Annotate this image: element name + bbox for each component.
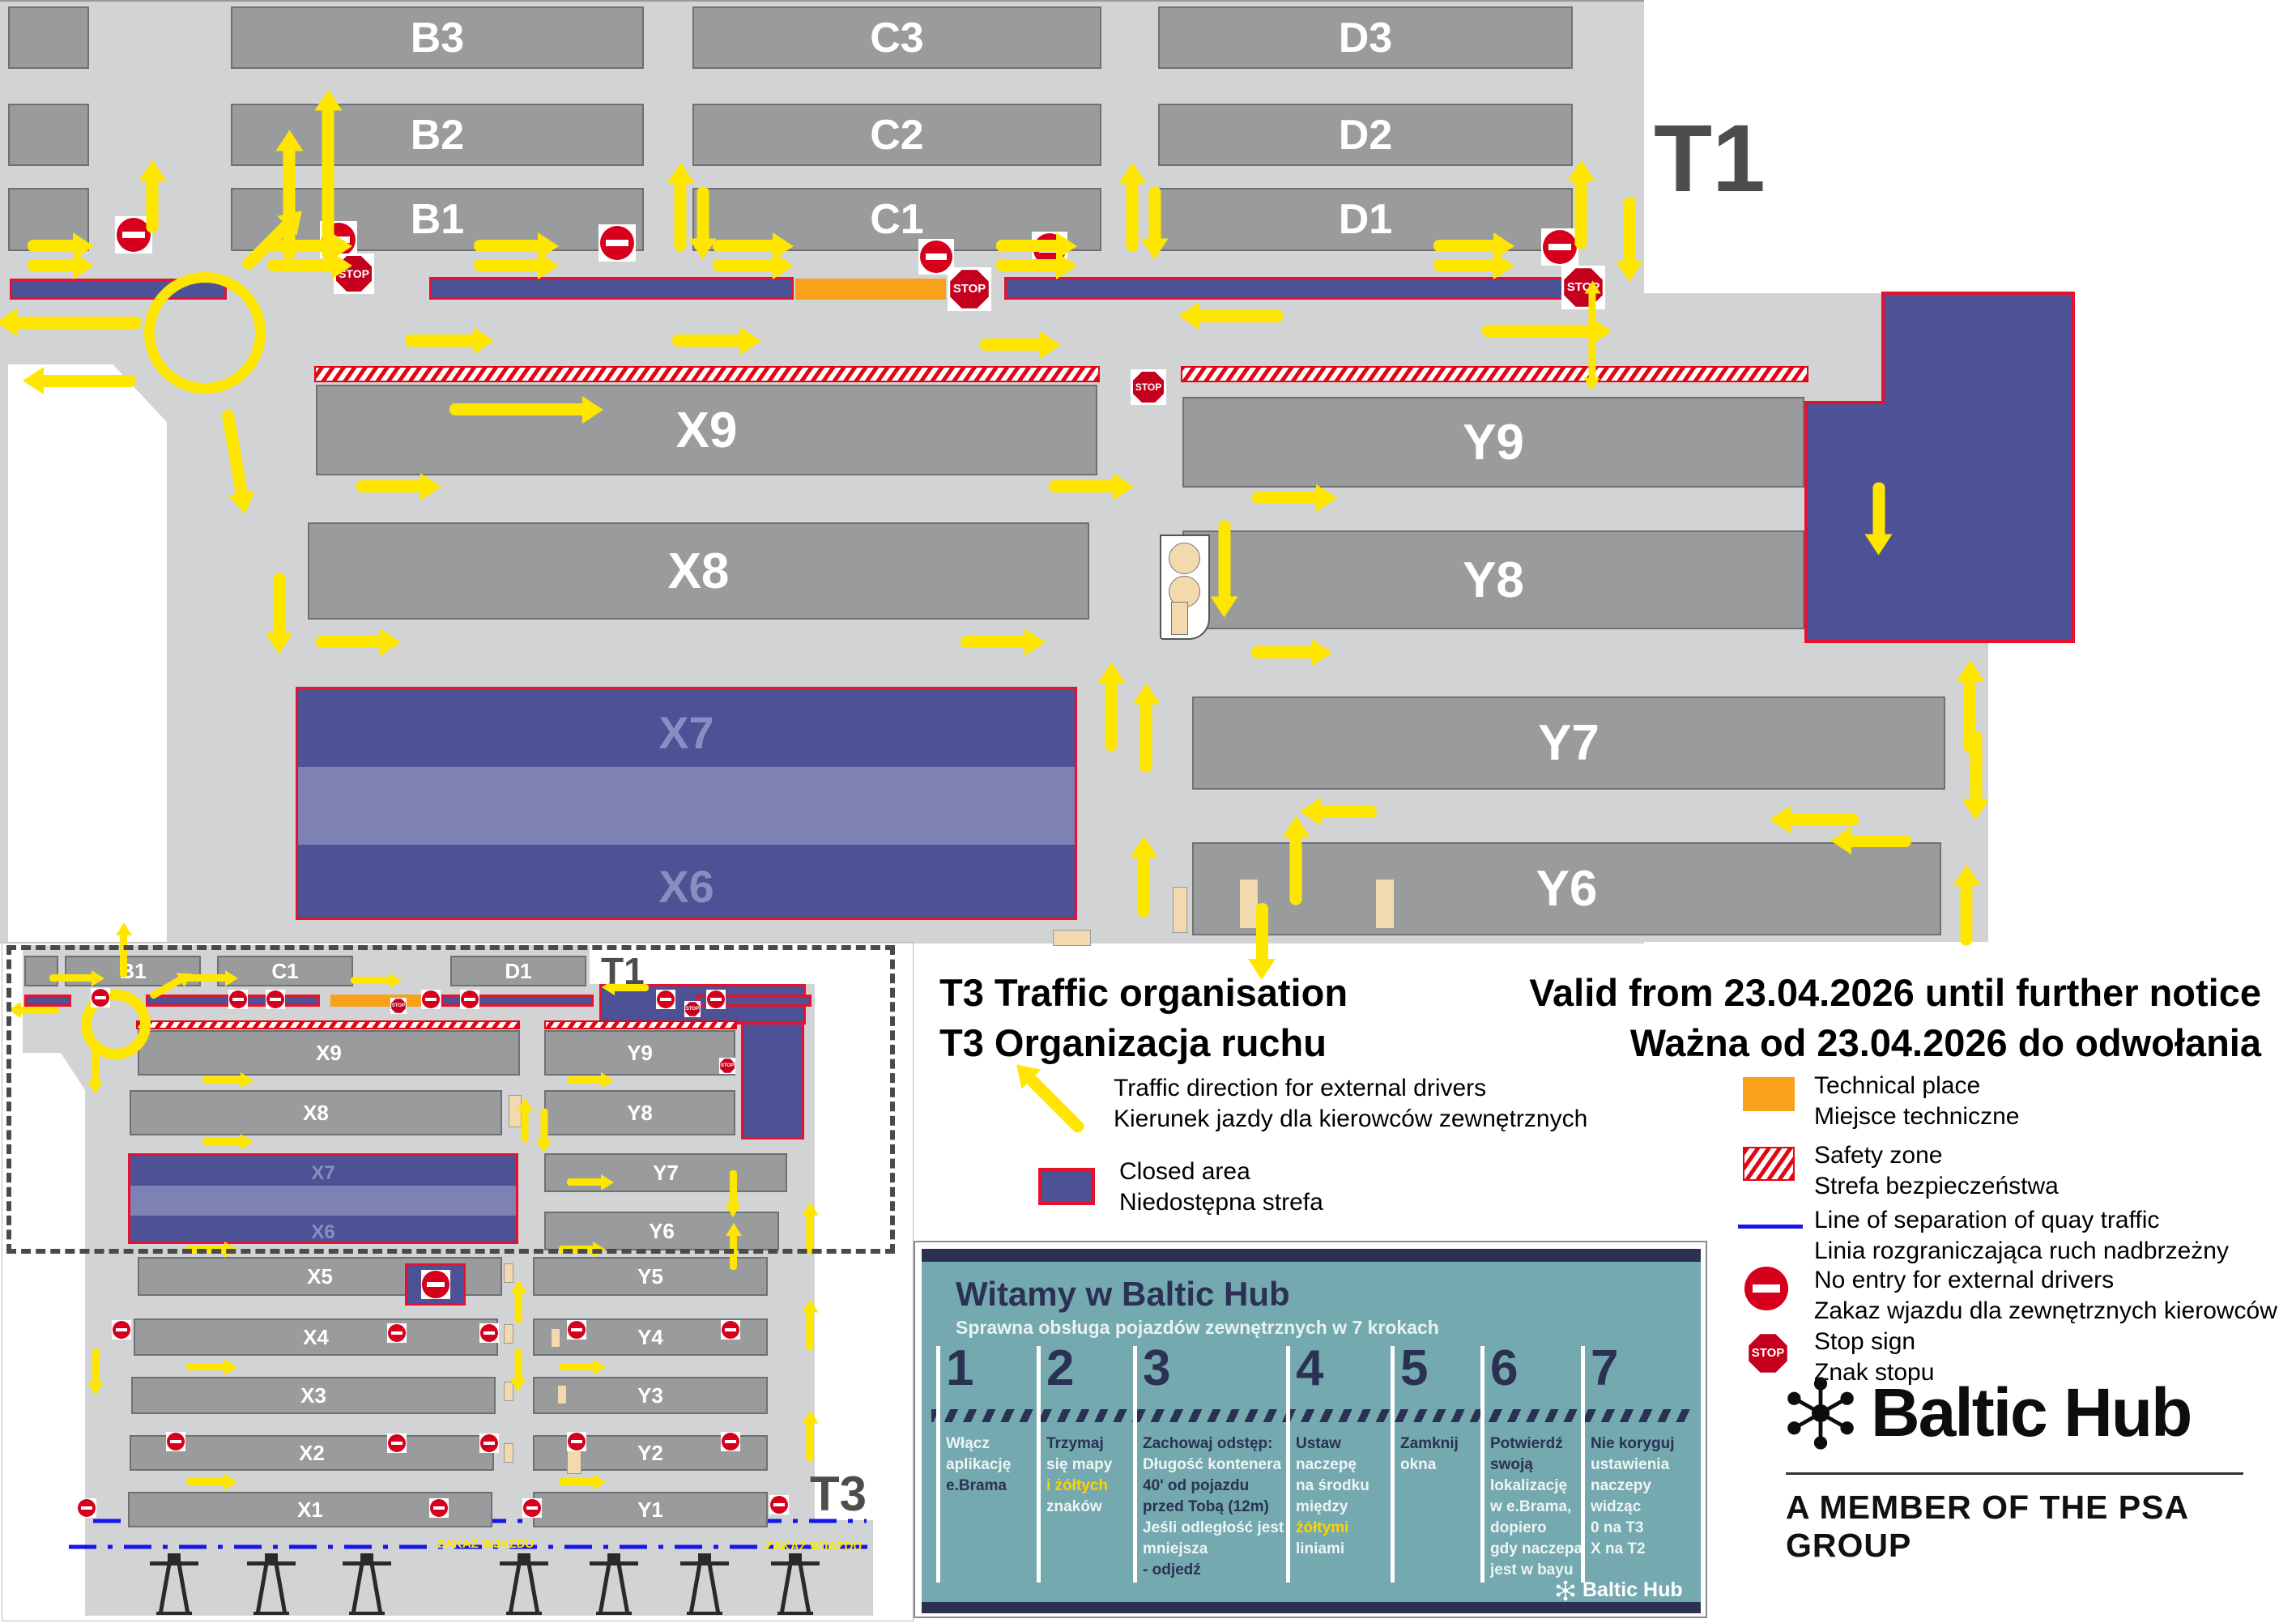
yard-block-D3: D3 bbox=[1158, 6, 1573, 69]
step-text-line: okna bbox=[1400, 1455, 1459, 1476]
quay-line-icon bbox=[1738, 1225, 1803, 1229]
step-column-line bbox=[936, 1346, 941, 1583]
step-text-line: ustawienia bbox=[1591, 1455, 1674, 1476]
safety-zone bbox=[314, 366, 1100, 382]
gate-pillar bbox=[1053, 930, 1091, 946]
step-text-line: się mapy bbox=[1046, 1455, 1112, 1476]
traffic-direction-arrow bbox=[474, 259, 543, 271]
crane-leg bbox=[598, 1565, 611, 1613]
traffic-direction-arrow bbox=[356, 480, 425, 492]
safety-zone-icon bbox=[1743, 1147, 1795, 1181]
yard-block-C3: C3 bbox=[692, 6, 1101, 69]
crane-leg bbox=[780, 1565, 792, 1613]
main-closed-area-x7-x6: X7X6 bbox=[296, 687, 1077, 920]
closed-area-icon bbox=[1038, 1168, 1095, 1205]
traffic-direction-arrow bbox=[980, 339, 1045, 351]
gate-pillar bbox=[1171, 602, 1188, 635]
legend-no-entry-en: No entry for external drivers bbox=[1814, 1265, 2277, 1296]
traffic-direction-arrow bbox=[1786, 814, 1859, 826]
step-text-line: Zachowaj odstęp: bbox=[1143, 1433, 1284, 1455]
step-text-line: naczepę bbox=[1296, 1455, 1370, 1476]
no-entry-sign bbox=[1541, 228, 1578, 266]
step-text-line: lokalizację bbox=[1490, 1476, 1582, 1497]
stop-sign: STOP bbox=[948, 267, 991, 311]
stop-sign-glyph: STOP bbox=[950, 270, 989, 309]
no-entry-sign bbox=[421, 1270, 450, 1299]
traffic-direction-arrow bbox=[1140, 700, 1152, 773]
no-entry-sign bbox=[567, 1432, 586, 1451]
crane-leg bbox=[708, 1565, 720, 1613]
sts-crane-icon bbox=[680, 1553, 729, 1617]
yard-block-X4: X4 bbox=[134, 1318, 498, 1356]
yard-block-Y3: Y3 bbox=[533, 1377, 768, 1414]
traffic-direction-arrow bbox=[713, 240, 777, 252]
step-text: Potwierdźswojąlokalizacjęw e.Brama,dopie… bbox=[1490, 1433, 1582, 1581]
stop-sign: STOP bbox=[1131, 369, 1166, 405]
traffic-direction-arrow bbox=[147, 177, 159, 233]
infographic-brand-icon bbox=[1555, 1580, 1576, 1601]
crane-leg bbox=[351, 1565, 364, 1613]
legend-item-closed-area: Closed area Niedostępna strefa bbox=[1119, 1157, 1323, 1218]
gate-kiosk bbox=[1160, 535, 1210, 640]
no-entry-sign bbox=[721, 1432, 740, 1451]
step-text-line: 0 na T3 bbox=[1591, 1518, 1674, 1539]
step-text-line: Nie koryguj bbox=[1591, 1433, 1674, 1455]
no-entry-sign bbox=[522, 1498, 542, 1518]
quay-no-entry-text-right: ZAKAZ WJAZDU bbox=[765, 1540, 862, 1553]
no-entry-sign bbox=[387, 1433, 407, 1453]
stop-sign-glyph: STOP bbox=[1749, 1334, 1787, 1373]
infographic-brand-text: Baltic Hub bbox=[1582, 1578, 1683, 1602]
step-number: 4 bbox=[1296, 1340, 1323, 1397]
traffic-direction-arrow bbox=[474, 240, 543, 252]
step-number: 6 bbox=[1490, 1340, 1518, 1397]
traffic-direction-arrow bbox=[996, 240, 1061, 252]
step-text-line: liniami bbox=[1296, 1539, 1370, 1560]
legend-item-no-entry: No entry for external drivers Zakaz wjaz… bbox=[1814, 1265, 2277, 1327]
traffic-direction-arrow bbox=[697, 187, 709, 244]
traffic-direction-arrow bbox=[28, 240, 78, 252]
step-text-line: Ustaw bbox=[1296, 1433, 1370, 1455]
legend-item-technical-place: Technical place Miejsce techniczne bbox=[1814, 1071, 2019, 1132]
yard-block-X3: X3 bbox=[131, 1377, 496, 1414]
legend-safety-pl: Strefa bezpieczeństwa bbox=[1814, 1171, 2059, 1202]
crane-leg bbox=[617, 1565, 629, 1613]
no-entry-sign bbox=[429, 1498, 449, 1518]
step-number: 1 bbox=[946, 1340, 973, 1397]
infographic-brand: Baltic Hub bbox=[1555, 1578, 1683, 1602]
legend-technical-pl: Miejsce techniczne bbox=[1814, 1101, 2019, 1132]
step-text-line: Długość kontenera bbox=[1143, 1455, 1284, 1476]
traffic-direction-arrow bbox=[1961, 881, 1973, 946]
step-column-line bbox=[1037, 1346, 1042, 1583]
closed-block-label-bottom: X6 bbox=[298, 860, 1075, 913]
closed-strip bbox=[1004, 277, 1571, 300]
crane-leg bbox=[370, 1565, 382, 1613]
psa-group-text: A MEMBER OF THE PSA GROUP bbox=[1786, 1489, 2296, 1565]
no-entry-sign bbox=[479, 1433, 499, 1453]
step-text-line: Włącz bbox=[946, 1433, 1011, 1455]
inset-extent-box bbox=[6, 945, 895, 1254]
traffic-direction-arrow bbox=[186, 1363, 227, 1370]
traffic-direction-arrow bbox=[1252, 492, 1321, 504]
step-text-line: mniejsza bbox=[1143, 1539, 1284, 1560]
step-text-line: znaków bbox=[1046, 1497, 1112, 1518]
inset-t3-label: T3 bbox=[810, 1466, 867, 1522]
step-text: Trzymajsię mapyi żółtychznaków bbox=[1046, 1433, 1112, 1518]
crane-cab bbox=[698, 1553, 711, 1562]
step-text-line: między bbox=[1296, 1497, 1370, 1518]
traffic-direction-arrow bbox=[515, 1291, 522, 1323]
yard-block-unnamed bbox=[8, 6, 89, 69]
step-text: Włączaplikacjęe.Brama bbox=[946, 1433, 1011, 1497]
baltic-hub-logo-icon bbox=[1782, 1374, 1859, 1452]
legend-item-traffic-direction: Traffic direction for external drivers K… bbox=[1114, 1073, 1587, 1135]
crane-leg bbox=[256, 1565, 268, 1613]
traffic-direction-arrow bbox=[1482, 325, 1595, 337]
traffic-direction-arrow bbox=[807, 1421, 814, 1462]
traffic-direction-arrow bbox=[1316, 806, 1377, 818]
traffic-direction-arrow bbox=[1589, 332, 1596, 381]
sts-crane-icon bbox=[500, 1553, 548, 1617]
yard-block-X8: X8 bbox=[308, 522, 1089, 620]
no-entry-sign bbox=[77, 1498, 96, 1518]
step-text-line: 40' od pojazdu bbox=[1143, 1476, 1284, 1497]
crane-cab bbox=[168, 1553, 181, 1562]
legend-title-en: T3 Traffic organisation bbox=[939, 970, 1348, 1015]
gate-light bbox=[1169, 543, 1200, 574]
yard-block-Y6: Y6 bbox=[1192, 842, 1941, 935]
step-text: Zachowaj odstęp:Długość kontenera40' od … bbox=[1143, 1433, 1284, 1581]
legend-closed-area-pl: Niedostępna strefa bbox=[1119, 1187, 1323, 1218]
legend-item-quay-line: Line of separation of quay traffic Linia… bbox=[1814, 1205, 2229, 1267]
sts-crane-icon bbox=[343, 1553, 391, 1617]
step-text-line: żółtymi bbox=[1296, 1518, 1370, 1539]
traffic-direction-arrow bbox=[405, 334, 478, 347]
crane-cab bbox=[360, 1553, 373, 1562]
step-text-line: naczepy bbox=[1591, 1476, 1674, 1497]
infographic-top-bar bbox=[922, 1249, 1701, 1262]
step-column-line bbox=[1391, 1346, 1395, 1583]
legend-item-safety-zone: Safety zone Strefa bezpieczeństwa bbox=[1814, 1140, 2059, 1202]
step-text-line: swoją bbox=[1490, 1455, 1582, 1476]
sts-crane-icon bbox=[590, 1553, 638, 1617]
inset-gate-pillar bbox=[504, 1443, 513, 1463]
traffic-direction-arrow bbox=[322, 106, 334, 260]
no-entry-sign bbox=[166, 1432, 185, 1451]
step-text-line: - odjedź bbox=[1143, 1560, 1284, 1581]
infographic-divider-hatch bbox=[931, 1409, 1691, 1422]
traffic-direction-arrow bbox=[1219, 521, 1231, 602]
traffic-direction-arrow bbox=[559, 1478, 595, 1485]
technical-place bbox=[795, 279, 946, 300]
legend-closed-area-en: Closed area bbox=[1119, 1157, 1323, 1187]
stop-sign-icon: STOP bbox=[1746, 1331, 1790, 1375]
quay-no-entry-text-left: ZAKAZ WJAZDU bbox=[437, 1537, 534, 1551]
gate-pillar bbox=[1173, 887, 1187, 933]
yard-block-Y7: Y7 bbox=[1192, 696, 1945, 790]
stop-sign-glyph: STOP bbox=[1133, 372, 1165, 403]
no-entry-sign bbox=[598, 224, 636, 262]
no-entry-sign bbox=[721, 1320, 740, 1340]
sts-crane-icon bbox=[150, 1553, 198, 1617]
step-text: Zamknijokna bbox=[1400, 1433, 1459, 1476]
inset-t1-label: T1 bbox=[601, 949, 645, 993]
traffic-direction-arrow bbox=[1251, 646, 1316, 658]
closed-strip bbox=[429, 277, 794, 300]
traffic-direction-arrow bbox=[672, 334, 745, 347]
traffic-direction-arrow bbox=[1624, 197, 1636, 266]
gate-pillar bbox=[1375, 879, 1395, 929]
yard-block-D2: D2 bbox=[1158, 104, 1573, 166]
traffic-direction-arrow bbox=[186, 1478, 227, 1485]
yard-block-Y1: Y1 bbox=[533, 1492, 768, 1527]
step-number: 2 bbox=[1046, 1340, 1074, 1397]
no-entry-sign bbox=[567, 1320, 586, 1340]
inset-gate-pillar bbox=[551, 1328, 560, 1348]
yard-block-Y8: Y8 bbox=[1182, 530, 1804, 629]
traffic-direction-arrow bbox=[807, 1310, 814, 1351]
traffic-direction-arrow bbox=[1575, 177, 1587, 249]
legend-safety-en: Safety zone bbox=[1814, 1140, 2059, 1171]
crane-leg bbox=[689, 1565, 701, 1613]
inset-gate-pillar bbox=[504, 1324, 513, 1344]
crane-cab bbox=[518, 1553, 530, 1562]
traffic-direction-arrow bbox=[39, 375, 136, 387]
safety-zone bbox=[1181, 366, 1808, 382]
step-text-line: przed Tobą (12m) bbox=[1143, 1497, 1284, 1518]
traffic-direction-arrow bbox=[1290, 833, 1302, 905]
yard-block-Y9: Y9 bbox=[1182, 397, 1804, 488]
crane-leg bbox=[799, 1565, 811, 1613]
no-entry-sign bbox=[769, 1495, 789, 1514]
crane-base bbox=[506, 1612, 542, 1615]
step-text-line: Zamknij bbox=[1400, 1433, 1459, 1455]
infographic-title: Witamy w Baltic Hub bbox=[956, 1275, 1290, 1314]
crane-base bbox=[253, 1612, 289, 1615]
step-text: Nie korygujustawienianaczepywidząc0 na T… bbox=[1591, 1433, 1674, 1560]
yard-block-unnamed bbox=[8, 104, 89, 166]
no-entry-icon bbox=[1743, 1265, 1790, 1312]
infographic-subtitle: Sprawna obsługa pojazdów zewnętrznych w … bbox=[956, 1317, 1439, 1339]
baltic-hub-logo: Baltic Hub bbox=[1782, 1374, 2191, 1452]
traffic-direction-arrow bbox=[274, 573, 286, 638]
no-entry-sign bbox=[479, 1323, 499, 1343]
step-text-line: Potwierdź bbox=[1490, 1433, 1582, 1455]
legend-valid-pl: Ważna od 23.04.2026 do odwołania bbox=[1630, 1020, 2261, 1065]
traffic-direction-arrow bbox=[1149, 187, 1161, 244]
crane-leg bbox=[527, 1565, 539, 1613]
traffic-direction-arrow bbox=[28, 259, 78, 271]
traffic-direction-arrow bbox=[515, 1349, 522, 1382]
traffic-direction-arrow bbox=[1138, 853, 1150, 918]
closed-area-middle-band bbox=[298, 767, 1075, 845]
step-number: 5 bbox=[1400, 1340, 1428, 1397]
step-text-line: dopiero bbox=[1490, 1518, 1582, 1539]
traffic-direction-arrow bbox=[1970, 731, 1983, 804]
legend-quay-en: Line of separation of quay traffic bbox=[1814, 1205, 2229, 1236]
yard-block-X9: X9 bbox=[316, 385, 1097, 475]
traffic-direction-arrow bbox=[267, 259, 336, 271]
legend-stop-en: Stop sign bbox=[1814, 1327, 1934, 1357]
crane-leg bbox=[509, 1565, 521, 1613]
traffic-direction-arrow bbox=[1433, 240, 1498, 252]
step-text-line: Trzymaj bbox=[1046, 1433, 1112, 1455]
crane-base bbox=[687, 1612, 722, 1615]
crane-base bbox=[777, 1612, 813, 1615]
legend-title-pl: T3 Organizacja ruchu bbox=[939, 1020, 1327, 1065]
legend-traffic-direction-en: Traffic direction for external drivers bbox=[1114, 1073, 1587, 1104]
main-map: T1 B3C3D3B2C2D2B1C1D1X9X8Y9Y8Y7Y6X7X6 ST… bbox=[0, 0, 2296, 942]
traffic-direction-arrow bbox=[12, 317, 142, 329]
crane-base bbox=[349, 1612, 385, 1615]
no-entry-sign bbox=[112, 1320, 131, 1340]
closed-area-right bbox=[1806, 293, 2073, 641]
welcome-infographic: Witamy w Baltic Hub Sprawna obsługa poja… bbox=[914, 1241, 1707, 1618]
crane-cab bbox=[607, 1553, 620, 1562]
step-number: 3 bbox=[1143, 1340, 1170, 1397]
crane-leg bbox=[177, 1565, 190, 1613]
inset-map: B1C1D1X9Y9X8Y8Y7Y6X5Y5X4Y4X3Y3X2Y2X1Y1X7… bbox=[0, 942, 915, 1623]
step-text-line: widząc bbox=[1591, 1497, 1674, 1518]
yard-block-B3: B3 bbox=[231, 6, 644, 69]
step-column-line bbox=[1133, 1346, 1138, 1583]
no-entry-sign bbox=[387, 1323, 407, 1343]
legend-traffic-direction-pl: Kierunek jazdy dla kierowców zewnętrznyc… bbox=[1114, 1104, 1587, 1135]
traffic-direction-arrow bbox=[1049, 480, 1118, 492]
traffic-direction-arrow bbox=[1433, 259, 1498, 271]
step-text-line: gdy naczepa bbox=[1490, 1539, 1582, 1560]
crane-cab bbox=[789, 1553, 802, 1562]
traffic-direction-arrow bbox=[713, 259, 777, 271]
step-text-line: e.Brama bbox=[946, 1476, 1011, 1497]
traffic-direction-arrow bbox=[1127, 179, 1139, 252]
crane-leg bbox=[275, 1565, 287, 1613]
traffic-direction-arrow bbox=[996, 259, 1061, 271]
yard-block-C2: C2 bbox=[692, 104, 1101, 166]
traffic-direction-arrow bbox=[449, 403, 587, 415]
legend-no-entry-pl: Zakaz wjazdu dla zewnętrznych kierowców bbox=[1814, 1296, 2277, 1327]
inset-gate-pillar bbox=[557, 1385, 567, 1404]
traffic-direction-arrow bbox=[1256, 903, 1268, 964]
step-column-line bbox=[1480, 1346, 1485, 1583]
step-text-line: aplikację bbox=[946, 1455, 1011, 1476]
traffic-direction-arrow bbox=[1873, 483, 1885, 539]
page: T1 B3C3D3B2C2D2B1C1D1X9X8Y9Y8Y7Y6X7X6 ST… bbox=[0, 0, 2296, 1623]
step-text-line: i żółtych bbox=[1046, 1476, 1112, 1497]
legend-valid-en: Valid from 23.04.2026 until further noti… bbox=[1529, 970, 2261, 1015]
sts-crane-icon bbox=[771, 1553, 820, 1617]
legend-technical-en: Technical place bbox=[1814, 1071, 2019, 1101]
traffic-direction-arrow bbox=[961, 636, 1029, 648]
closed-block-label-top: X7 bbox=[298, 706, 1075, 759]
infographic-bottom-bar bbox=[922, 1602, 1701, 1613]
traffic-direction-arrow bbox=[559, 1363, 595, 1370]
step-text-line: w e.Brama, bbox=[1490, 1497, 1582, 1518]
step-text-line: X na T2 bbox=[1591, 1539, 1674, 1560]
logo-divider bbox=[1786, 1472, 2243, 1475]
traffic-direction-arrow bbox=[1023, 1072, 1086, 1135]
crane-base bbox=[596, 1612, 632, 1615]
baltic-hub-logo-text: Baltic Hub bbox=[1871, 1374, 2191, 1452]
crane-base bbox=[156, 1612, 192, 1615]
crane-cab bbox=[265, 1553, 278, 1562]
sts-crane-icon bbox=[247, 1553, 296, 1617]
traffic-direction-arrow bbox=[92, 1348, 100, 1385]
step-text-line: na środku bbox=[1296, 1476, 1370, 1497]
traffic-direction-arrow bbox=[316, 636, 385, 648]
traffic-direction-arrow bbox=[675, 179, 687, 252]
traffic-direction-arrow bbox=[1105, 679, 1118, 752]
traffic-direction-arrow bbox=[1195, 310, 1284, 322]
step-text-line: Jeśli odległość jest bbox=[1143, 1518, 1284, 1539]
step-column-line bbox=[1286, 1346, 1291, 1583]
step-number: 7 bbox=[1591, 1340, 1618, 1397]
step-text: Ustawnaczepęna środkumiędzyżółtymiliniam… bbox=[1296, 1433, 1370, 1560]
main-roundabout bbox=[144, 272, 266, 394]
legend-quay-pl: Linia rozgraniczająca ruch nadbrzeżny bbox=[1814, 1236, 2229, 1267]
traffic-direction-arrow bbox=[1847, 835, 1911, 847]
crane-leg bbox=[159, 1565, 171, 1613]
technical-place-icon bbox=[1743, 1077, 1795, 1111]
step-column-line bbox=[1581, 1346, 1586, 1583]
